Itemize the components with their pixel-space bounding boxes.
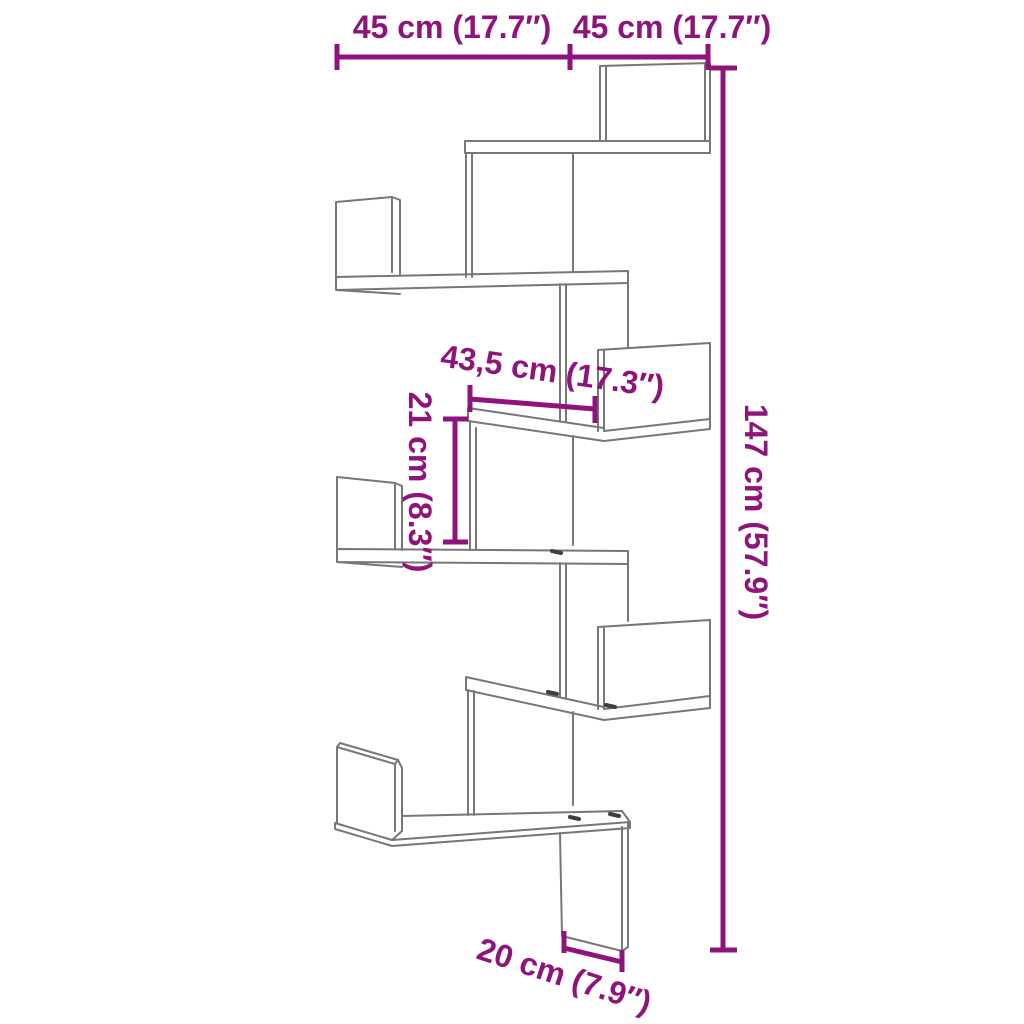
- left-side-panel-4: [337, 477, 402, 550]
- corner-shelf-dimension-diagram: 45 cm (17.7″) 45 cm (17.7″) 43,5 cm (17.…: [0, 0, 1024, 1024]
- divider-panel-1: [466, 153, 573, 277]
- left-side-panel-6: [337, 743, 402, 831]
- dim-line-total-height: [710, 68, 737, 950]
- dim-label-top-left-width: 45 cm (17.7″): [353, 9, 552, 45]
- shelf-board-1: [465, 141, 710, 153]
- divider-panel-3: [470, 421, 573, 549]
- mounting-mark-set: [548, 551, 619, 819]
- top-right-side-panel: [600, 63, 710, 141]
- shelf-board-6: [335, 811, 630, 846]
- dim-line-top-width: [337, 44, 708, 70]
- dim-label-total-height: 147 cm (57.9″): [738, 404, 774, 620]
- shelf-board-2: [336, 271, 628, 294]
- shelf-board-4: [337, 549, 628, 567]
- divider-panel-4: [560, 563, 628, 698]
- bottom-vertical-panel: [560, 822, 628, 951]
- dimension-lines: [337, 44, 737, 972]
- left-side-panel-2: [336, 197, 400, 277]
- right-side-panel-5: [598, 620, 710, 709]
- dim-line-shelf-spacing: [443, 419, 468, 542]
- shelf-board-3: [468, 408, 710, 441]
- dim-label-shelf-spacing-height: 21 cm (8.3″): [402, 392, 438, 573]
- dim-label-top-right-width: 45 cm (17.7″): [573, 9, 772, 45]
- shelf-board-5: [466, 677, 710, 720]
- divider-panel-5: [468, 690, 573, 815]
- dimension-labels: 45 cm (17.7″) 45 cm (17.7″) 43,5 cm (17.…: [353, 9, 774, 1021]
- dimension-diagram-canvas: 45 cm (17.7″) 45 cm (17.7″) 43,5 cm (17.…: [0, 0, 1024, 1024]
- shelf-drawing: [335, 63, 710, 951]
- mounting-marks: [548, 551, 619, 819]
